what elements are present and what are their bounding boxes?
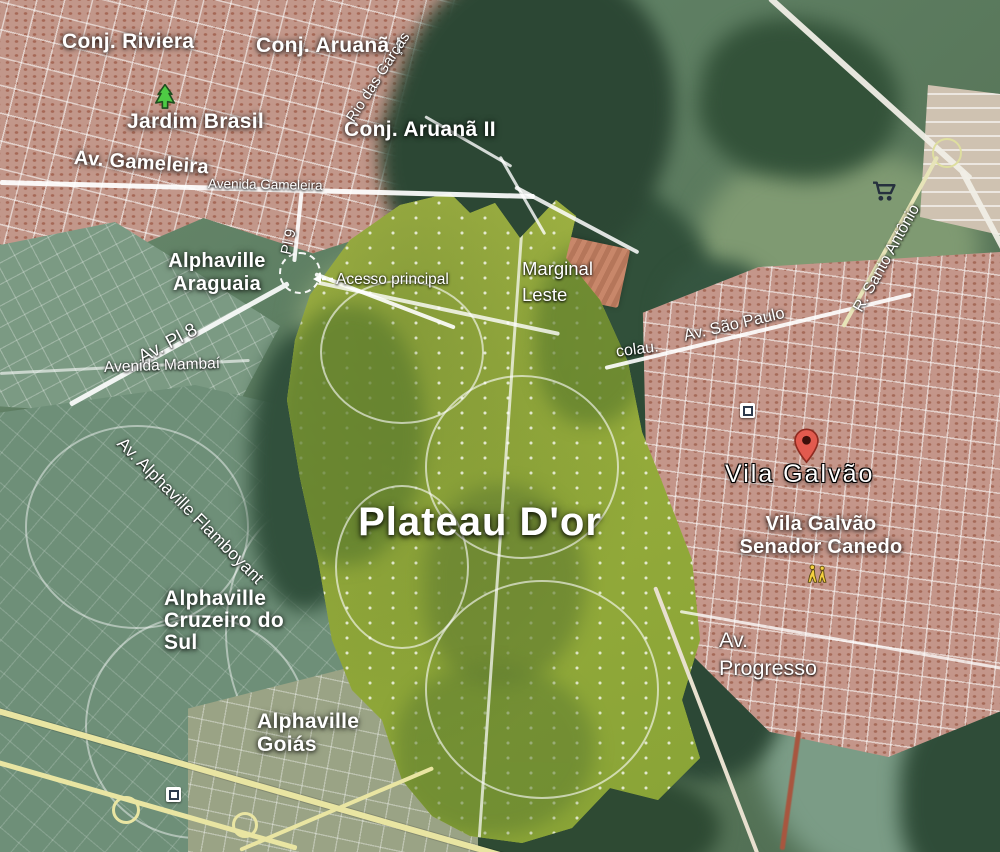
shopping-cart-icon[interactable] (872, 181, 897, 202)
label-line: Av. (719, 626, 817, 654)
building-poi-glyph (743, 406, 753, 416)
interchange-ring (932, 138, 962, 168)
label-vila-galvao-senador-canedo: Vila Galvão Senador Canedo (723, 513, 919, 559)
dashed-arrow-left-icon (313, 273, 333, 285)
label-vila-galvao: Vila Galvão (725, 460, 874, 489)
label-jardim-brasil: Jardim Brasil (127, 110, 264, 134)
label-line: Goiás (257, 733, 359, 756)
label-alphaville-cruzeiro-do-sul: Alphaville Cruzeiro do Sul (164, 588, 284, 654)
building-poi-icon[interactable] (166, 787, 181, 802)
label-line: Marginal (522, 256, 593, 282)
label-line: Alphaville (257, 710, 359, 733)
label-marginal-leste: Marginal Leste (522, 256, 593, 308)
satellite-map[interactable]: Conj. Riviera Conj. Aruanã I Jardim Bras… (0, 0, 1000, 852)
red-map-pin-icon[interactable] (794, 428, 819, 464)
building-poi-icon[interactable] (740, 403, 755, 418)
label-conj-aruana-ii: Conj. Aruanã II (344, 118, 496, 142)
label-line: Sul (164, 632, 284, 654)
plateau-loop-road (425, 580, 659, 799)
building-poi-glyph (169, 790, 179, 800)
label-alphaville-goias: Alphaville Goiás (257, 710, 359, 756)
label-line: Progresso (719, 654, 817, 682)
label-line: Alphaville (164, 588, 284, 610)
road-label-av-progresso: Av. Progresso (719, 626, 817, 682)
label-line: Leste (522, 282, 593, 308)
label-conj-aruana-i: Conj. Aruanã I (256, 34, 402, 58)
roundabout-ring (112, 796, 140, 824)
road-label-acesso-principal: Acesso principal (336, 271, 449, 289)
label-plateau-dor: Plateau D'or (340, 500, 620, 545)
road-label-avenida-gameleira: Avenida Gameleira (208, 176, 323, 193)
label-alphaville-araguaia: Alphaville Araguaia (158, 250, 276, 296)
label-line: Alphaville (158, 250, 276, 273)
pedestrians-icon[interactable] (804, 564, 831, 585)
label-line: Araguaia (158, 273, 276, 296)
label-conj-riviera: Conj. Riviera (62, 30, 194, 54)
label-line: Vila Galvão (723, 513, 919, 536)
roundabout-ring (232, 812, 258, 838)
label-line: Senador Canedo (723, 536, 919, 559)
label-line: Cruzeiro do (164, 610, 284, 632)
